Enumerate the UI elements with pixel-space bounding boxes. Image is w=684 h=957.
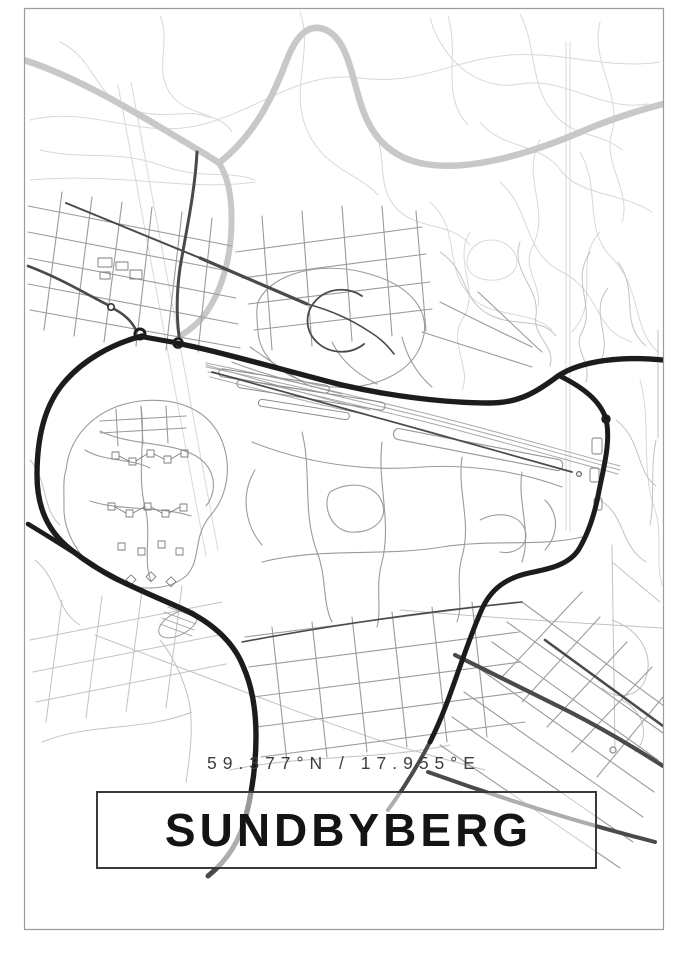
railway [154,363,620,644]
city-name-box: SUNDBYBERG [96,791,597,869]
major-roads [28,304,663,816]
faint-roads [30,12,662,585]
city-name: SUNDBYBERG [161,803,532,857]
coordinates-label: 59.377°N / 17.955°E [24,753,664,774]
poster: 59.377°N / 17.955°E SUNDBYBERG [0,0,684,957]
